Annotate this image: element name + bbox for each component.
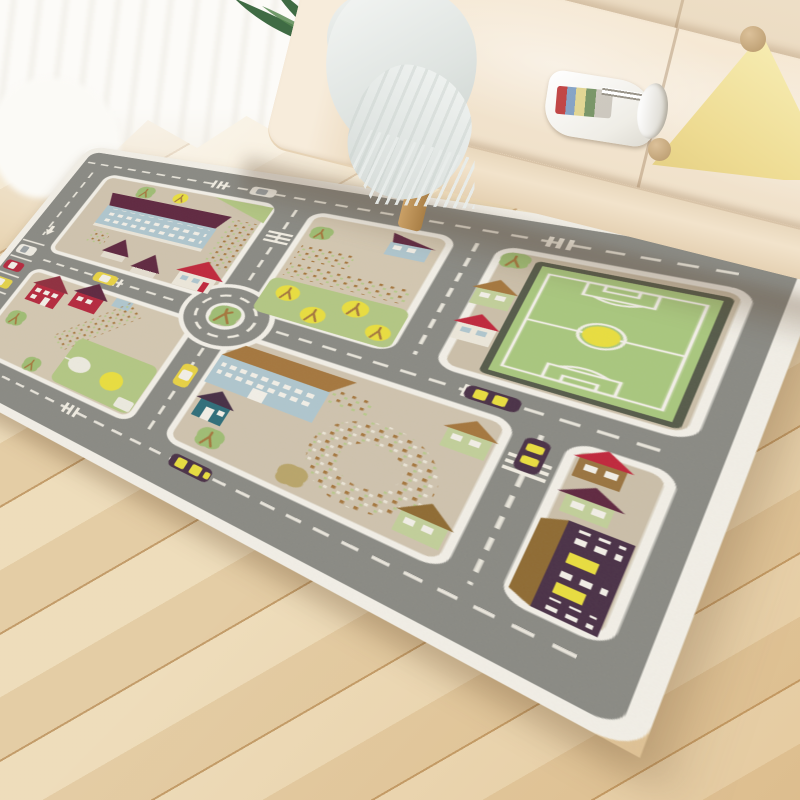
pillow-pompom-left bbox=[648, 138, 671, 161]
living-room-photo: { "scene": { "description": "Bright livi… bbox=[0, 0, 800, 800]
pillow-pompom-top bbox=[740, 26, 766, 52]
